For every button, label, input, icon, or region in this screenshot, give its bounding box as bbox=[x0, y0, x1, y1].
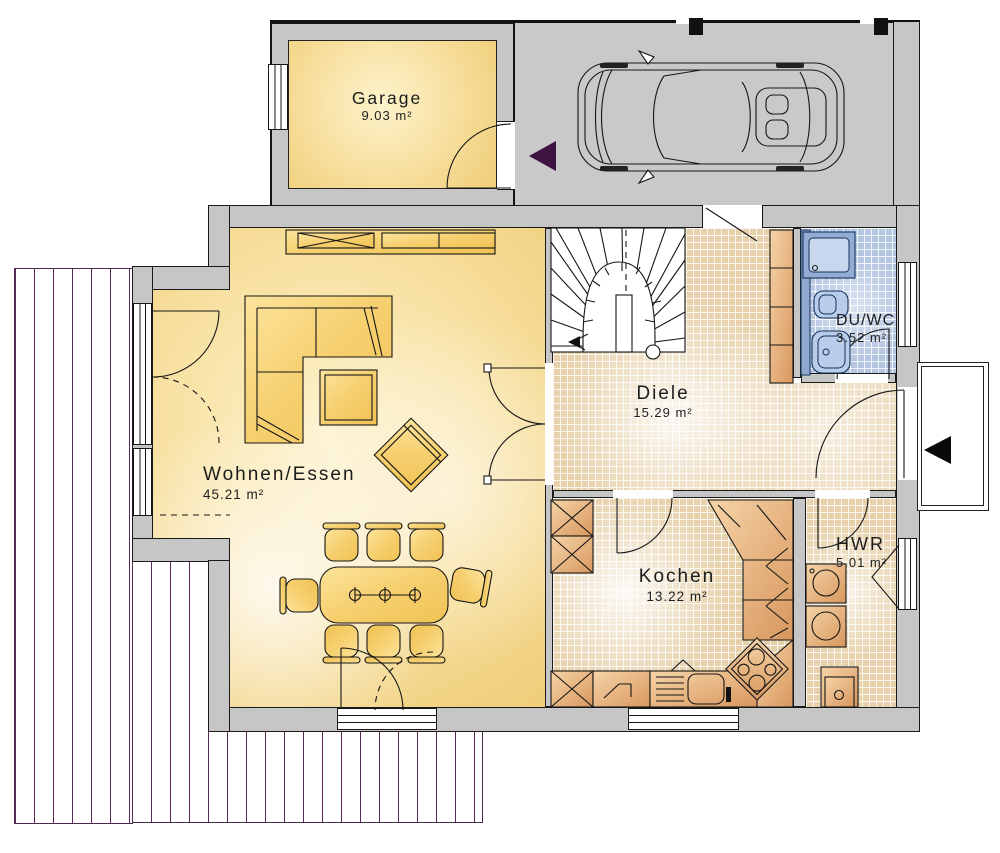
car-icon bbox=[578, 51, 844, 183]
dining-table bbox=[320, 567, 448, 623]
hwr-door-swing bbox=[818, 498, 868, 548]
kitchen-counter-bottom bbox=[551, 671, 757, 707]
kitchen-cabinet-tall bbox=[551, 500, 593, 573]
dryer bbox=[806, 606, 846, 647]
carport-arrow-icon bbox=[529, 141, 556, 171]
double-door-wohnen-diele bbox=[484, 364, 545, 484]
plan-drawing-overlay bbox=[0, 0, 1000, 853]
armchair bbox=[374, 418, 448, 492]
coffee-table bbox=[320, 370, 377, 425]
shower bbox=[803, 232, 855, 278]
washing-machine bbox=[806, 564, 846, 603]
garage-door-swing bbox=[447, 124, 511, 188]
stairs bbox=[551, 228, 685, 359]
carport-door-leaf bbox=[706, 208, 757, 241]
entry-door-swing bbox=[816, 390, 904, 478]
water-heater bbox=[821, 667, 858, 707]
kochen-door-swing bbox=[617, 498, 672, 553]
floor-plan: Garage 9.03 m² Wohnen/Essen 45.21 m² Die… bbox=[0, 0, 1000, 853]
sideboard bbox=[286, 230, 495, 254]
entry-arrow-icon bbox=[924, 436, 951, 464]
toilet bbox=[814, 291, 848, 318]
washbasin bbox=[812, 331, 850, 373]
hwr-window-tilt bbox=[872, 545, 899, 609]
french-door-left-swing bbox=[153, 311, 230, 515]
wardrobe bbox=[770, 230, 793, 383]
